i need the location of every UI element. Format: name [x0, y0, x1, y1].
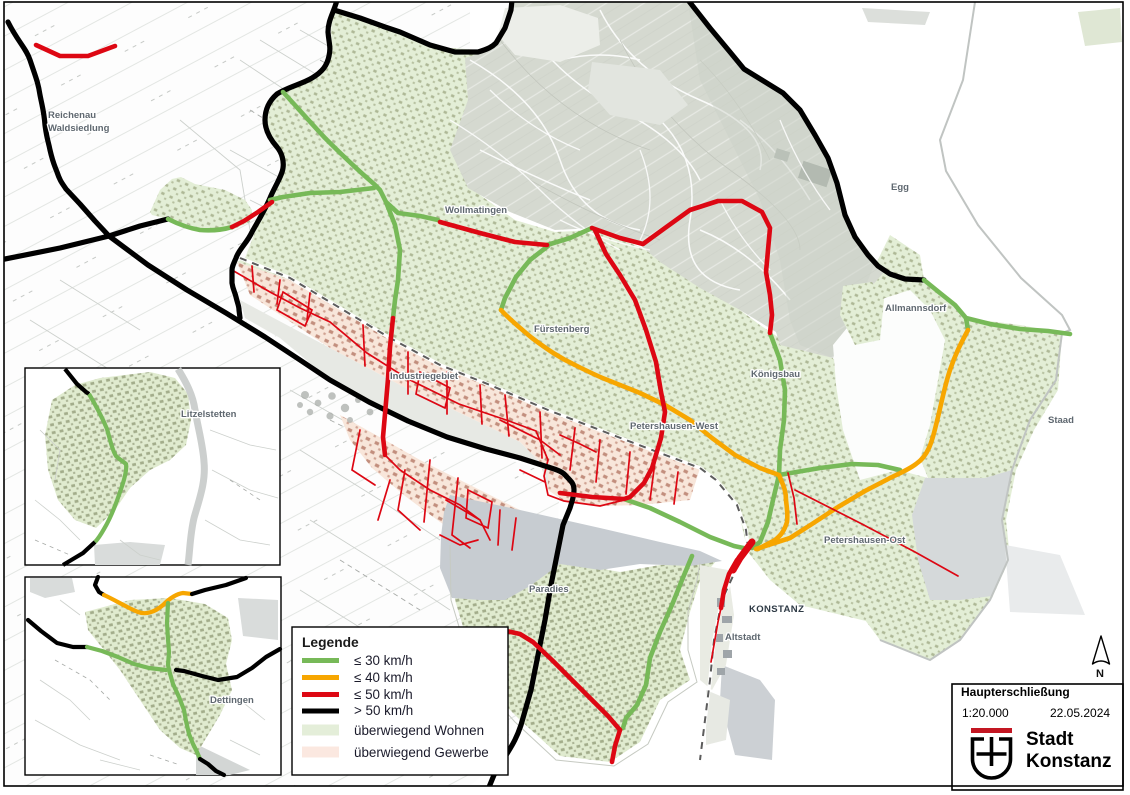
svg-text:≤ 30 km/h: ≤ 30 km/h — [354, 653, 413, 668]
svg-text:Petershausen-West: Petershausen-West — [630, 421, 719, 432]
svg-text:Paradies: Paradies — [529, 584, 569, 595]
svg-text:Legende: Legende — [302, 635, 359, 650]
svg-text:N: N — [1096, 668, 1104, 680]
svg-text:Haupterschließung: Haupterschließung — [961, 685, 1070, 699]
svg-text:Staad: Staad — [1048, 415, 1074, 426]
svg-text:überwiegend Gewerbe: überwiegend Gewerbe — [354, 745, 489, 760]
svg-text:Waldsiedlung: Waldsiedlung — [48, 123, 110, 134]
svg-text:Konstanz: Konstanz — [1026, 751, 1112, 772]
svg-text:Litzelstetten: Litzelstetten — [181, 409, 237, 420]
svg-text:≤ 40 km/h: ≤ 40 km/h — [354, 670, 413, 685]
svg-text:KONSTANZ: KONSTANZ — [749, 604, 804, 615]
svg-text:Reichenau: Reichenau — [48, 110, 96, 121]
svg-text:≤ 50 km/h: ≤ 50 km/h — [354, 687, 413, 702]
svg-text:Altstadt: Altstadt — [725, 632, 761, 643]
svg-text:Königsbau: Königsbau — [751, 369, 800, 380]
svg-text:> 50 km/h: > 50 km/h — [354, 703, 413, 718]
svg-text:Industriegebiet: Industriegebiet — [390, 371, 459, 382]
svg-text:Dettingen: Dettingen — [210, 695, 254, 706]
svg-text:1:20.000: 1:20.000 — [962, 706, 1009, 720]
svg-text:Allmannsdorf: Allmannsdorf — [885, 303, 947, 314]
svg-text:22.05.2024: 22.05.2024 — [1050, 706, 1110, 720]
svg-text:Egg: Egg — [891, 182, 909, 193]
svg-text:Fürstenberg: Fürstenberg — [534, 324, 590, 335]
svg-text:Petershausen-Ost: Petershausen-Ost — [824, 535, 906, 546]
svg-text:Stadt: Stadt — [1026, 729, 1074, 750]
svg-text:überwiegend Wohnen: überwiegend Wohnen — [354, 723, 484, 738]
svg-text:Wollmatingen: Wollmatingen — [445, 205, 507, 216]
